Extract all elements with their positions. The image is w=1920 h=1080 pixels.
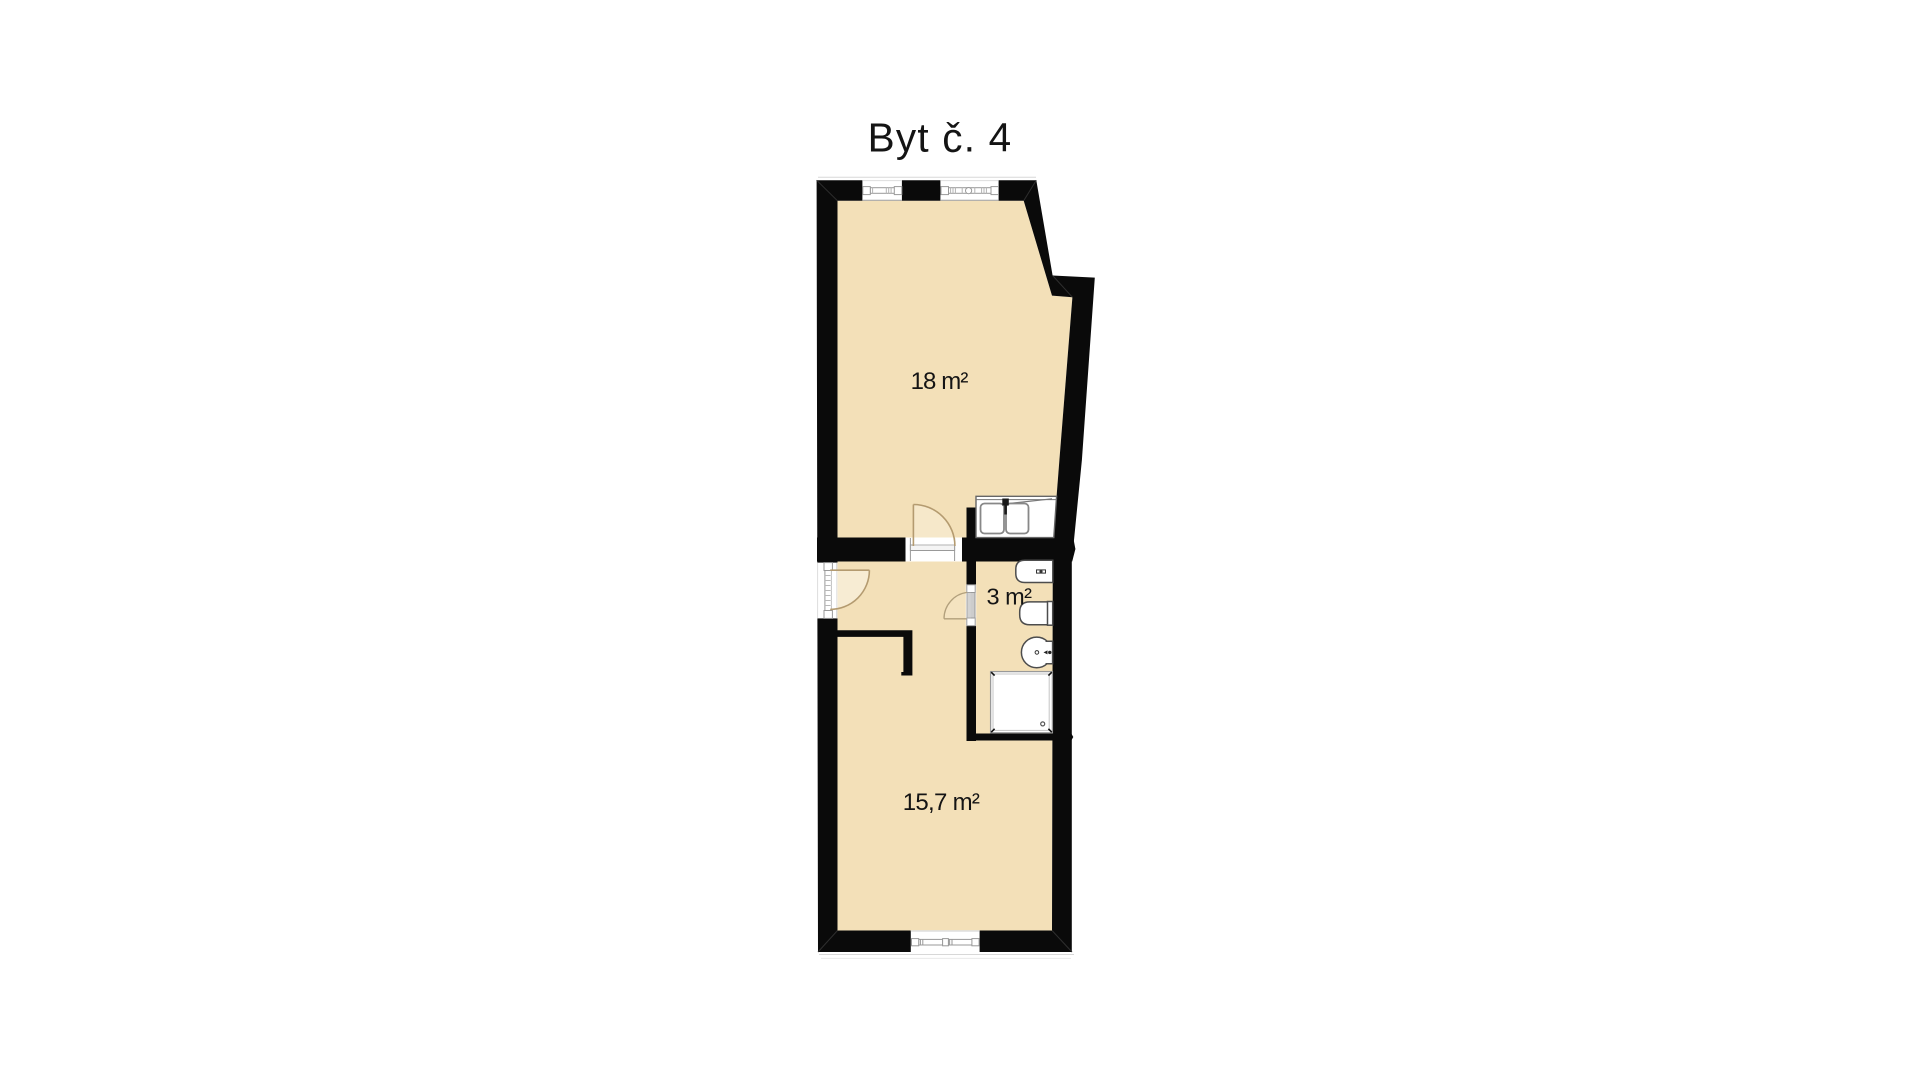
svg-text:18 m²: 18 m² — [911, 368, 969, 395]
svg-text:3 m²: 3 m² — [987, 584, 1033, 610]
svg-text:Byt č. 4: Byt č. 4 — [868, 115, 1013, 161]
svg-text:15,7 m²: 15,7 m² — [903, 789, 980, 816]
